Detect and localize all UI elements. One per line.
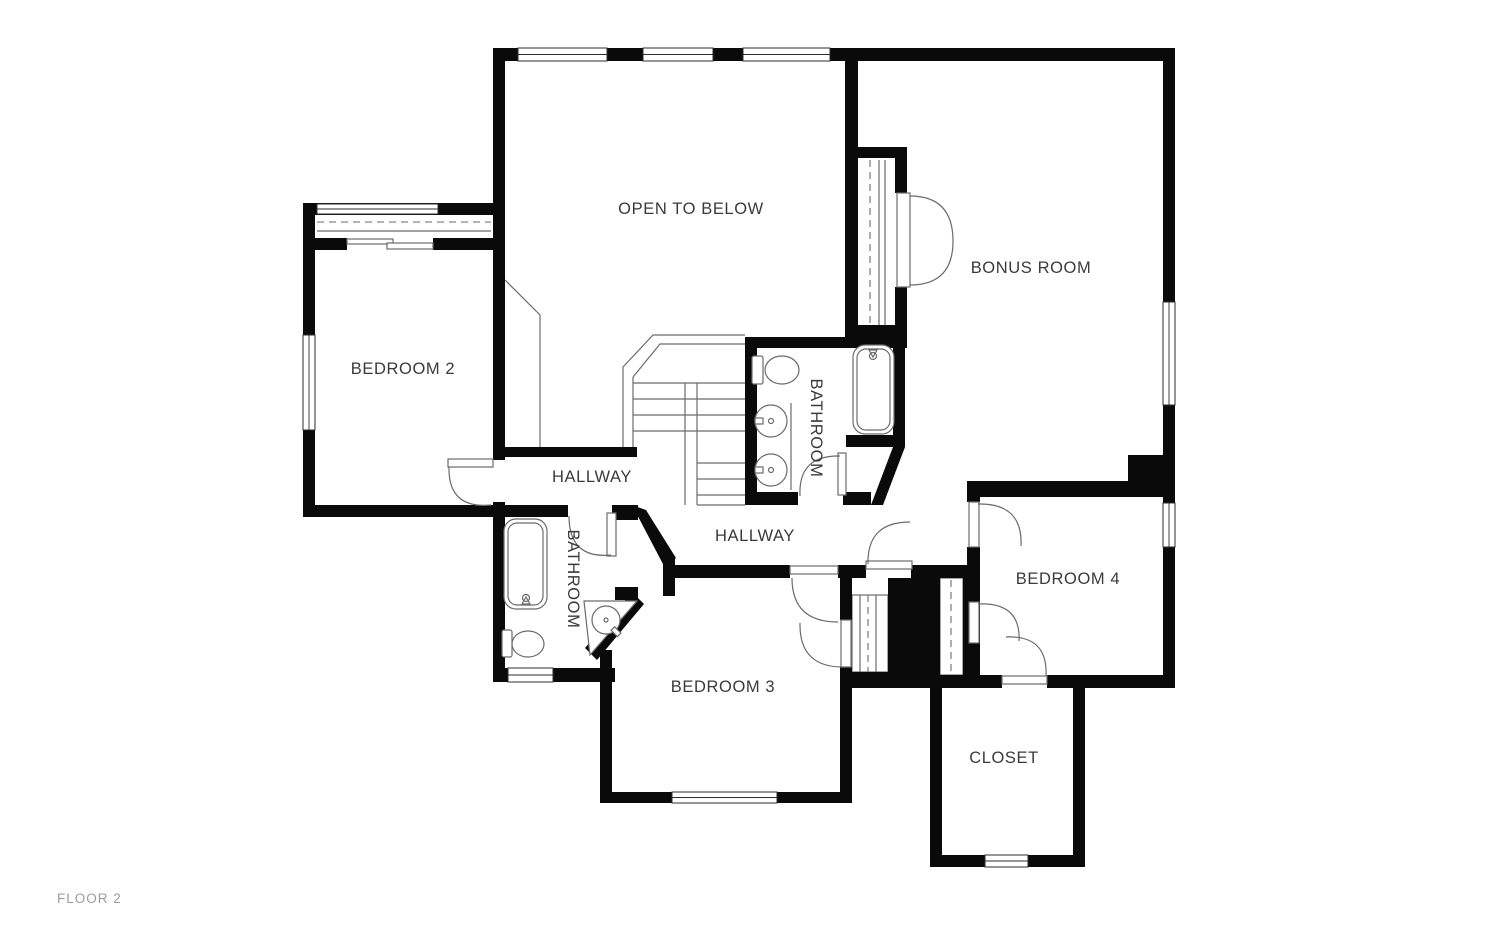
door-bedroom3 [790,566,838,622]
room-label-bedroom-4: BEDROOM 4 [1016,570,1120,588]
double-sink-vanity [755,403,791,490]
floor-plan: OPEN TO BELOW BONUS ROOM BEDROOM 2 BATHR… [0,0,1500,936]
bathtub [504,519,547,609]
corner-sink [584,601,637,655]
fixtures [502,345,894,657]
floor-number-label: FLOOR 2 [57,891,122,906]
door-bonus-bifold [897,193,953,287]
window [1163,503,1175,547]
staircase [623,335,745,505]
window [303,335,315,430]
window [317,204,438,214]
bedroom2-closet-rod [317,222,491,231]
door-bedroom3-closet [800,620,851,667]
window [643,48,713,61]
room-label-bedroom-3: BEDROOM 3 [671,678,775,696]
door-bedroom4-upper [969,502,1021,547]
toilet [752,356,799,384]
window [518,48,607,61]
room-label-hallway-upper: HALLWAY [552,468,632,486]
window [1163,302,1175,405]
room-label-bedroom-2: BEDROOM 2 [351,360,455,378]
room-label-closet: CLOSET [969,749,1039,767]
bathtub [853,345,894,434]
room-label-open-to-below: OPEN TO BELOW [618,200,764,218]
bonus-closet-shelves [870,160,885,325]
window [985,855,1028,867]
open-to-below-boundary [505,280,540,447]
door-closet [1002,637,1047,684]
window [508,668,553,682]
room-label-bonus-room: BONUS ROOM [971,259,1092,277]
room-label-bathroom-hall: BATHROOM [564,530,582,629]
window [743,48,830,61]
walls [303,48,1175,867]
windows [303,48,1175,867]
window [672,792,777,803]
floor-plan-drawing: OPEN TO BELOW BONUS ROOM BEDROOM 2 BATHR… [0,0,1500,936]
door-bedroom2 [448,459,493,505]
toilet [502,630,544,657]
room-label-hallway-lower: HALLWAY [715,527,795,545]
room-label-bathroom-main: BATHROOM [807,379,825,478]
door-linen-closet [866,522,912,569]
